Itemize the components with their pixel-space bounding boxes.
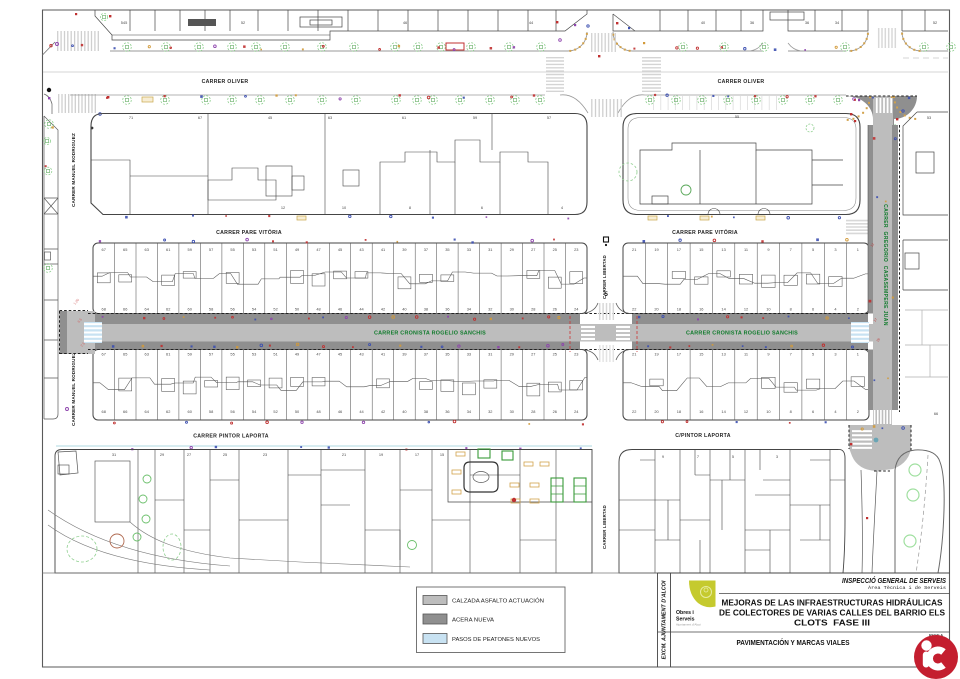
svg-text:71: 71: [129, 115, 133, 120]
svg-text:6: 6: [812, 409, 814, 414]
svg-text:CARRER PARE VITÓRIA: CARRER PARE VITÓRIA: [216, 228, 282, 236]
svg-text:66: 66: [934, 411, 938, 416]
svg-text:37: 37: [424, 352, 428, 357]
svg-text:Obres i: Obres i: [676, 610, 694, 616]
svg-text:21: 21: [342, 452, 346, 457]
svg-text:3: 3: [834, 247, 836, 252]
svg-text:CARRER MANUEL RODRIGUEZ: CARRER MANUEL RODRIGUEZ: [71, 133, 76, 207]
svg-text:PAVIMENTACIÓN Y MARCAS VIALES: PAVIMENTACIÓN Y MARCAS VIALES: [737, 638, 850, 647]
svg-text:58: 58: [209, 409, 213, 414]
svg-text:62: 62: [166, 307, 170, 312]
svg-text:9: 9: [662, 454, 664, 459]
svg-text:DE COLECTORES DE VARIAS CALLES: DE COLECTORES DE VARIAS CALLES DEL BARRI…: [719, 608, 945, 618]
svg-text:36: 36: [805, 20, 809, 25]
svg-text:43: 43: [359, 247, 363, 252]
svg-text:58: 58: [209, 307, 213, 312]
svg-text:29: 29: [510, 352, 514, 357]
svg-text:67: 67: [198, 115, 202, 120]
svg-text:CARRER LIBERTAD: CARRER LIBERTAD: [602, 505, 607, 549]
svg-text:CARRER CRONISTA ROGELIO SANCHI: CARRER CRONISTA ROGELIO SANCHIS: [686, 331, 798, 337]
svg-text:59: 59: [188, 247, 192, 252]
svg-text:28: 28: [531, 307, 535, 312]
svg-text:52: 52: [933, 20, 937, 25]
svg-text:Àrea Tècnica i de Serveis: Àrea Tècnica i de Serveis: [868, 584, 946, 591]
svg-text:18: 18: [677, 307, 681, 312]
svg-text:19: 19: [654, 352, 658, 357]
svg-text:49: 49: [295, 247, 299, 252]
svg-text:29: 29: [160, 452, 164, 457]
svg-text:7: 7: [790, 352, 792, 357]
svg-text:8: 8: [790, 307, 792, 312]
svg-text:5: 5: [812, 352, 814, 357]
svg-text:1: 1: [857, 352, 859, 357]
svg-text:31: 31: [488, 247, 492, 252]
svg-text:68: 68: [102, 307, 106, 312]
svg-text:46: 46: [403, 20, 407, 25]
svg-text:41: 41: [381, 352, 385, 357]
svg-text:29: 29: [510, 247, 514, 252]
svg-text:53: 53: [927, 115, 931, 120]
svg-text:39: 39: [402, 352, 406, 357]
svg-text:Ajuntament d’Alcoi: Ajuntament d’Alcoi: [676, 623, 701, 627]
svg-text:21: 21: [632, 247, 636, 252]
svg-text:35: 35: [445, 352, 449, 357]
svg-text:42: 42: [381, 307, 385, 312]
svg-text:12: 12: [281, 205, 285, 210]
svg-text:45: 45: [268, 115, 272, 120]
svg-text:13: 13: [721, 247, 725, 252]
svg-text:8: 8: [790, 409, 792, 414]
svg-text:ACERA NUEVA: ACERA NUEVA: [452, 618, 495, 624]
svg-text:12: 12: [744, 409, 748, 414]
svg-text:33: 33: [467, 352, 471, 357]
svg-text:33: 33: [467, 247, 471, 252]
svg-text:CLOTS FASE III: CLOTS FASE III: [794, 618, 870, 628]
svg-text:59: 59: [473, 115, 477, 120]
svg-text:63: 63: [145, 352, 149, 357]
svg-text:57: 57: [209, 352, 213, 357]
svg-text:16: 16: [699, 307, 703, 312]
svg-text:1: 1: [857, 247, 859, 252]
svg-text:17: 17: [677, 247, 681, 252]
svg-text:7: 7: [790, 247, 792, 252]
svg-text:5: 5: [732, 454, 734, 459]
svg-text:68: 68: [102, 409, 106, 414]
svg-text:CARRER GREGORIO CASASEMPERE: CARRER GREGORIO CASASEMPERE JUAN: [882, 204, 888, 326]
svg-text:38: 38: [424, 307, 428, 312]
svg-text:27: 27: [531, 247, 535, 252]
svg-text:25: 25: [553, 352, 557, 357]
svg-text:PASOS DE PEATONES NUEVOS: PASOS DE PEATONES NUEVOS: [452, 637, 541, 643]
svg-text:56: 56: [230, 307, 234, 312]
svg-text:5: 5: [812, 247, 814, 252]
svg-text:39: 39: [402, 247, 406, 252]
svg-text:55: 55: [230, 247, 234, 252]
svg-text:49: 49: [295, 352, 299, 357]
svg-text:2: 2: [857, 307, 859, 312]
svg-text:51: 51: [273, 247, 277, 252]
svg-text:13: 13: [721, 352, 725, 357]
svg-text:47: 47: [316, 352, 320, 357]
svg-text:37: 37: [424, 247, 428, 252]
svg-text:38: 38: [424, 409, 428, 414]
svg-text:36: 36: [445, 409, 449, 414]
svg-text:63: 63: [145, 247, 149, 252]
svg-text:3: 3: [834, 352, 836, 357]
svg-text:6: 6: [812, 307, 814, 312]
svg-text:CARRER OLIVER: CARRER OLIVER: [202, 79, 249, 85]
svg-text:11: 11: [744, 247, 748, 252]
svg-text:22: 22: [632, 307, 636, 312]
svg-text:36: 36: [445, 307, 449, 312]
svg-text:47: 47: [316, 247, 320, 252]
svg-text:66: 66: [123, 409, 127, 414]
svg-text:67: 67: [102, 352, 106, 357]
svg-text:CARRER CRONISTA ROGELIO SANCHI: CARRER CRONISTA ROGELIO SANCHIS: [374, 331, 486, 337]
svg-text:9: 9: [767, 352, 769, 357]
svg-text:32: 32: [488, 409, 492, 414]
svg-text:53: 53: [252, 352, 256, 357]
svg-text:CARRER MANUEL RODRIGUEZ: CARRER MANUEL RODRIGUEZ: [71, 352, 76, 426]
svg-text:INSPECCIÓ GENERAL DE SERVEIS: INSPECCIÓ GENERAL DE SERVEIS: [842, 576, 946, 585]
svg-text:7: 7: [697, 454, 699, 459]
svg-text:28: 28: [531, 409, 535, 414]
svg-text:46: 46: [338, 409, 342, 414]
svg-text:25: 25: [223, 452, 227, 457]
svg-text:53: 53: [252, 247, 256, 252]
svg-text:15: 15: [699, 247, 703, 252]
svg-text:41: 41: [381, 247, 385, 252]
svg-text:35: 35: [445, 247, 449, 252]
svg-text:27: 27: [187, 452, 191, 457]
svg-text:66: 66: [123, 307, 127, 312]
svg-text:18: 18: [677, 409, 681, 414]
svg-text:48: 48: [316, 409, 320, 414]
svg-text:2: 2: [857, 409, 859, 414]
svg-text:62: 62: [166, 409, 170, 414]
svg-text:31: 31: [488, 352, 492, 357]
svg-text:6: 6: [481, 205, 483, 210]
svg-text:12: 12: [744, 307, 748, 312]
svg-text:19: 19: [379, 452, 383, 457]
svg-text:3: 3: [776, 454, 778, 459]
svg-text:23: 23: [574, 247, 578, 252]
svg-text:61: 61: [166, 352, 170, 357]
svg-text:52: 52: [273, 409, 277, 414]
svg-text:59: 59: [188, 352, 192, 357]
svg-text:CALZADA ASFALTO ACTUACIÓN: CALZADA ASFALTO ACTUACIÓN: [452, 598, 544, 605]
svg-text:16: 16: [699, 409, 703, 414]
svg-text:65: 65: [123, 247, 127, 252]
svg-text:15: 15: [440, 452, 444, 457]
svg-text:52: 52: [241, 20, 245, 25]
svg-text:63: 63: [328, 115, 332, 120]
svg-text:46: 46: [338, 307, 342, 312]
svg-text:57: 57: [209, 247, 213, 252]
svg-text:45: 45: [338, 247, 342, 252]
svg-text:65: 65: [123, 352, 127, 357]
svg-text:17: 17: [415, 452, 419, 457]
svg-text:45: 45: [338, 352, 342, 357]
svg-text:545: 545: [121, 20, 128, 25]
svg-text:55: 55: [230, 352, 234, 357]
svg-text:56: 56: [230, 409, 234, 414]
svg-text:55: 55: [735, 114, 739, 119]
svg-text:26: 26: [553, 307, 557, 312]
svg-text:22: 22: [632, 409, 636, 414]
svg-text:57: 57: [547, 115, 551, 120]
svg-text:26: 26: [553, 409, 557, 414]
svg-text:CARRER PINTOR LAPORTA: CARRER PINTOR LAPORTA: [193, 434, 269, 440]
svg-text:CARRER OLIVER: CARRER OLIVER: [718, 79, 765, 85]
svg-text:23: 23: [263, 452, 267, 457]
svg-text:19: 19: [654, 247, 658, 252]
svg-text:21: 21: [632, 352, 636, 357]
svg-text:61: 61: [402, 115, 406, 120]
svg-text:32: 32: [488, 307, 492, 312]
svg-text:27: 27: [531, 352, 535, 357]
svg-text:CARRER LIBERTAD: CARRER LIBERTAD: [602, 255, 607, 299]
svg-text:EXCM. AJUNTAMENT D’ALCOI: EXCM. AJUNTAMENT D’ALCOI: [662, 580, 668, 659]
svg-text:51: 51: [273, 352, 277, 357]
svg-text:25: 25: [553, 247, 557, 252]
svg-text:15: 15: [699, 352, 703, 357]
svg-text:52: 52: [273, 307, 277, 312]
svg-text:MEJORAS DE LAS INFRAESTRUCTURA: MEJORAS DE LAS INFRAESTRUCTURAS HIDRÁULI…: [722, 598, 943, 608]
svg-text:36: 36: [750, 20, 754, 25]
svg-text:61: 61: [166, 247, 170, 252]
svg-text:31: 31: [112, 452, 116, 457]
svg-text:8: 8: [409, 205, 411, 210]
svg-text:43: 43: [359, 352, 363, 357]
svg-text:C/PINTOR LAPORTA: C/PINTOR LAPORTA: [675, 433, 731, 439]
svg-text:CARRER PARE VITÓRIA: CARRER PARE VITÓRIA: [672, 228, 738, 236]
svg-text:23: 23: [574, 352, 578, 357]
svg-text:67: 67: [102, 247, 106, 252]
svg-text:17: 17: [677, 352, 681, 357]
svg-text:9: 9: [767, 247, 769, 252]
svg-text:11: 11: [744, 352, 748, 357]
svg-text:48: 48: [316, 307, 320, 312]
svg-text:42: 42: [381, 409, 385, 414]
